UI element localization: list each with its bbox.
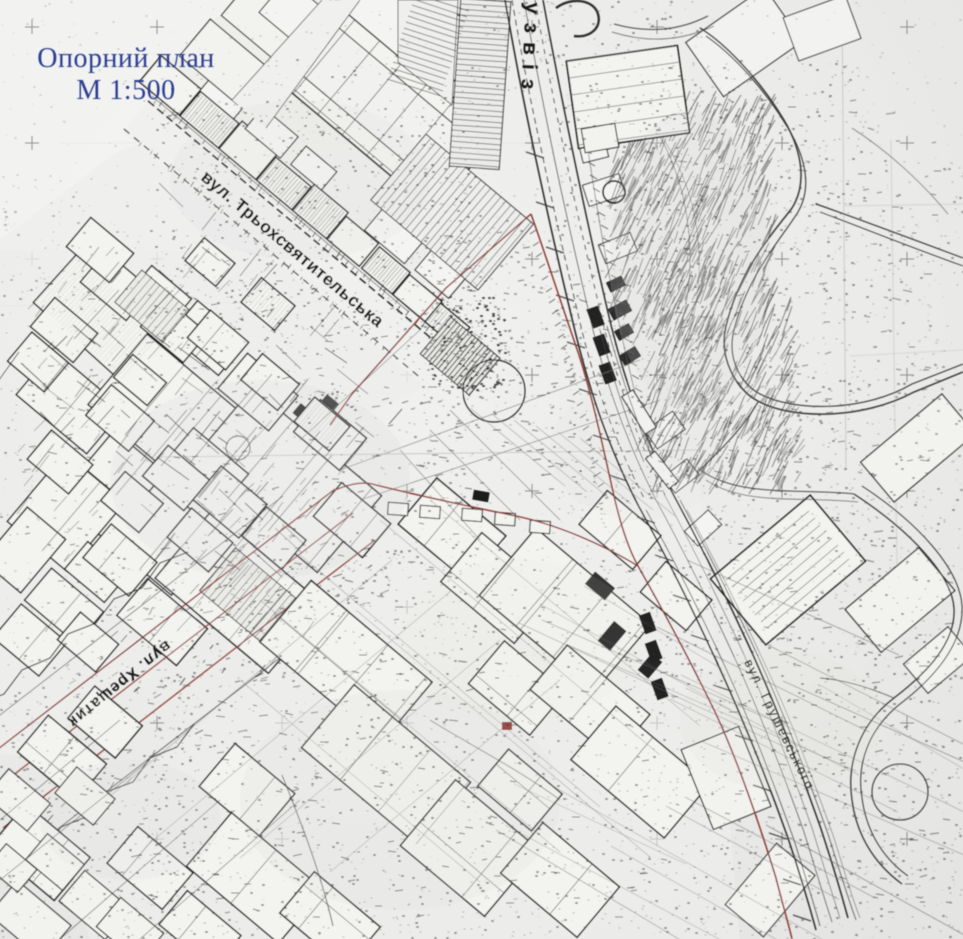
- svg-text:М 1:500: М 1:500: [76, 75, 175, 106]
- svg-text:Опорний план: Опорний план: [37, 43, 215, 74]
